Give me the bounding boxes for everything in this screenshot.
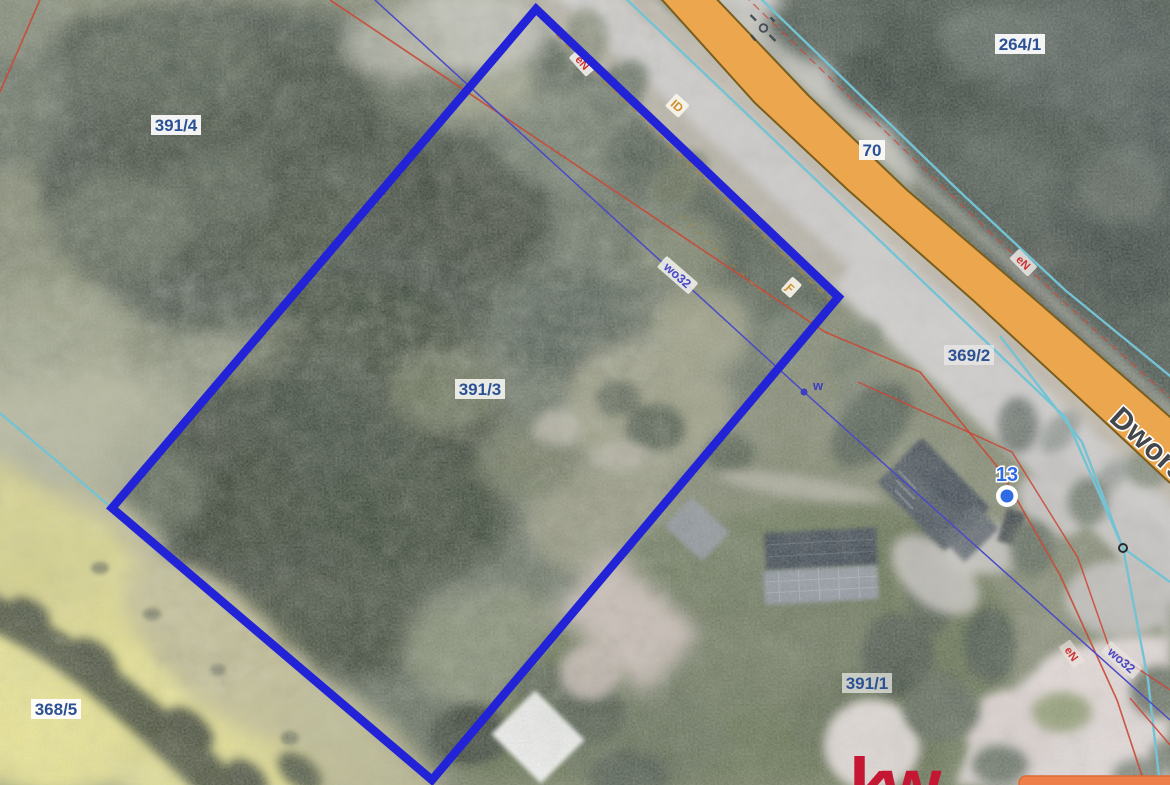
svg-text:264/1: 264/1 [999, 35, 1042, 54]
svg-text:368/5: 368/5 [35, 700, 78, 719]
svg-text:369/2: 369/2 [948, 346, 991, 365]
svg-text:w: w [812, 378, 824, 393]
svg-text:391/4: 391/4 [155, 116, 198, 135]
svg-text:391/3: 391/3 [459, 380, 502, 399]
svg-text:13: 13 [996, 464, 1018, 486]
svg-text:391/1: 391/1 [846, 674, 889, 693]
svg-text:70: 70 [863, 141, 882, 160]
svg-text:kw: kw [849, 743, 942, 785]
